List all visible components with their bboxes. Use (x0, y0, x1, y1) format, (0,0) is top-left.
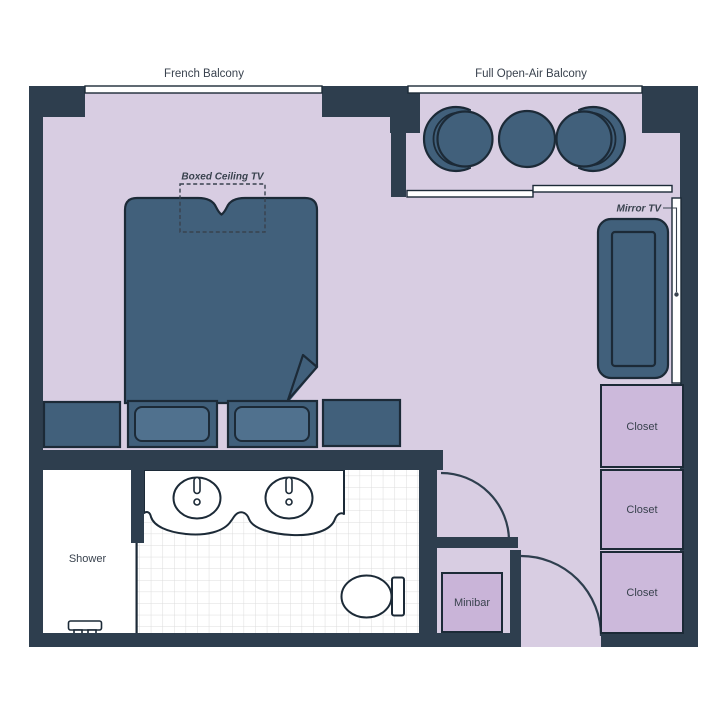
shower-glass-panel (136, 543, 138, 633)
open-air-balcony-label: Full Open-Air Balcony (475, 68, 587, 80)
bed (125, 198, 317, 403)
shower-partition-wall (131, 470, 144, 543)
closet-bottom-label: Closet (626, 587, 657, 599)
french-balcony-label: French Balcony (164, 68, 244, 80)
wall-bottom-right (601, 633, 698, 647)
wall-bottom-left (29, 633, 521, 647)
wall-corner-top-left (29, 86, 85, 117)
french-balcony-window (85, 86, 322, 93)
pillow-right (235, 407, 309, 441)
sink-left (174, 478, 221, 519)
pillow-left (135, 407, 209, 441)
sliding-door-panel-left (407, 191, 533, 198)
wall-bathroom-top (38, 450, 443, 470)
nightstand-right (323, 400, 400, 446)
closet-middle-label: Closet (626, 504, 657, 516)
shower-label: Shower (69, 553, 107, 565)
balcony-table (499, 111, 555, 167)
bathroom-door-leaf (437, 537, 518, 548)
floor-plan: French Balcony Full Open-Air Balcony Box… (0, 0, 726, 726)
wall-bathroom-right (419, 462, 437, 640)
toilet (342, 576, 405, 618)
open-air-balcony-window (408, 86, 642, 93)
wall-balcony-left (391, 86, 406, 197)
floor-plan-page: French Balcony Full Open-Air Balcony Box… (0, 0, 726, 726)
nightstand-left (44, 402, 120, 447)
closet-top-label: Closet (626, 421, 657, 433)
boxed-ceiling-tv-label: Boxed Ceiling TV (181, 172, 265, 183)
wall-left (29, 86, 43, 647)
mirror-tv-leader-dot (674, 292, 678, 296)
sliding-door-panel-right (533, 186, 672, 193)
balcony-chair-left (424, 107, 493, 171)
mirror-tv-label: Mirror TV (617, 204, 663, 215)
entry-door-leaf (510, 550, 521, 636)
wall-pillar-center (322, 86, 390, 117)
minibar-label: Minibar (454, 597, 490, 609)
entry-doorway-gap (521, 633, 601, 647)
sink-right (266, 478, 313, 519)
balcony-chair-right (557, 107, 626, 171)
sofa (598, 219, 668, 378)
